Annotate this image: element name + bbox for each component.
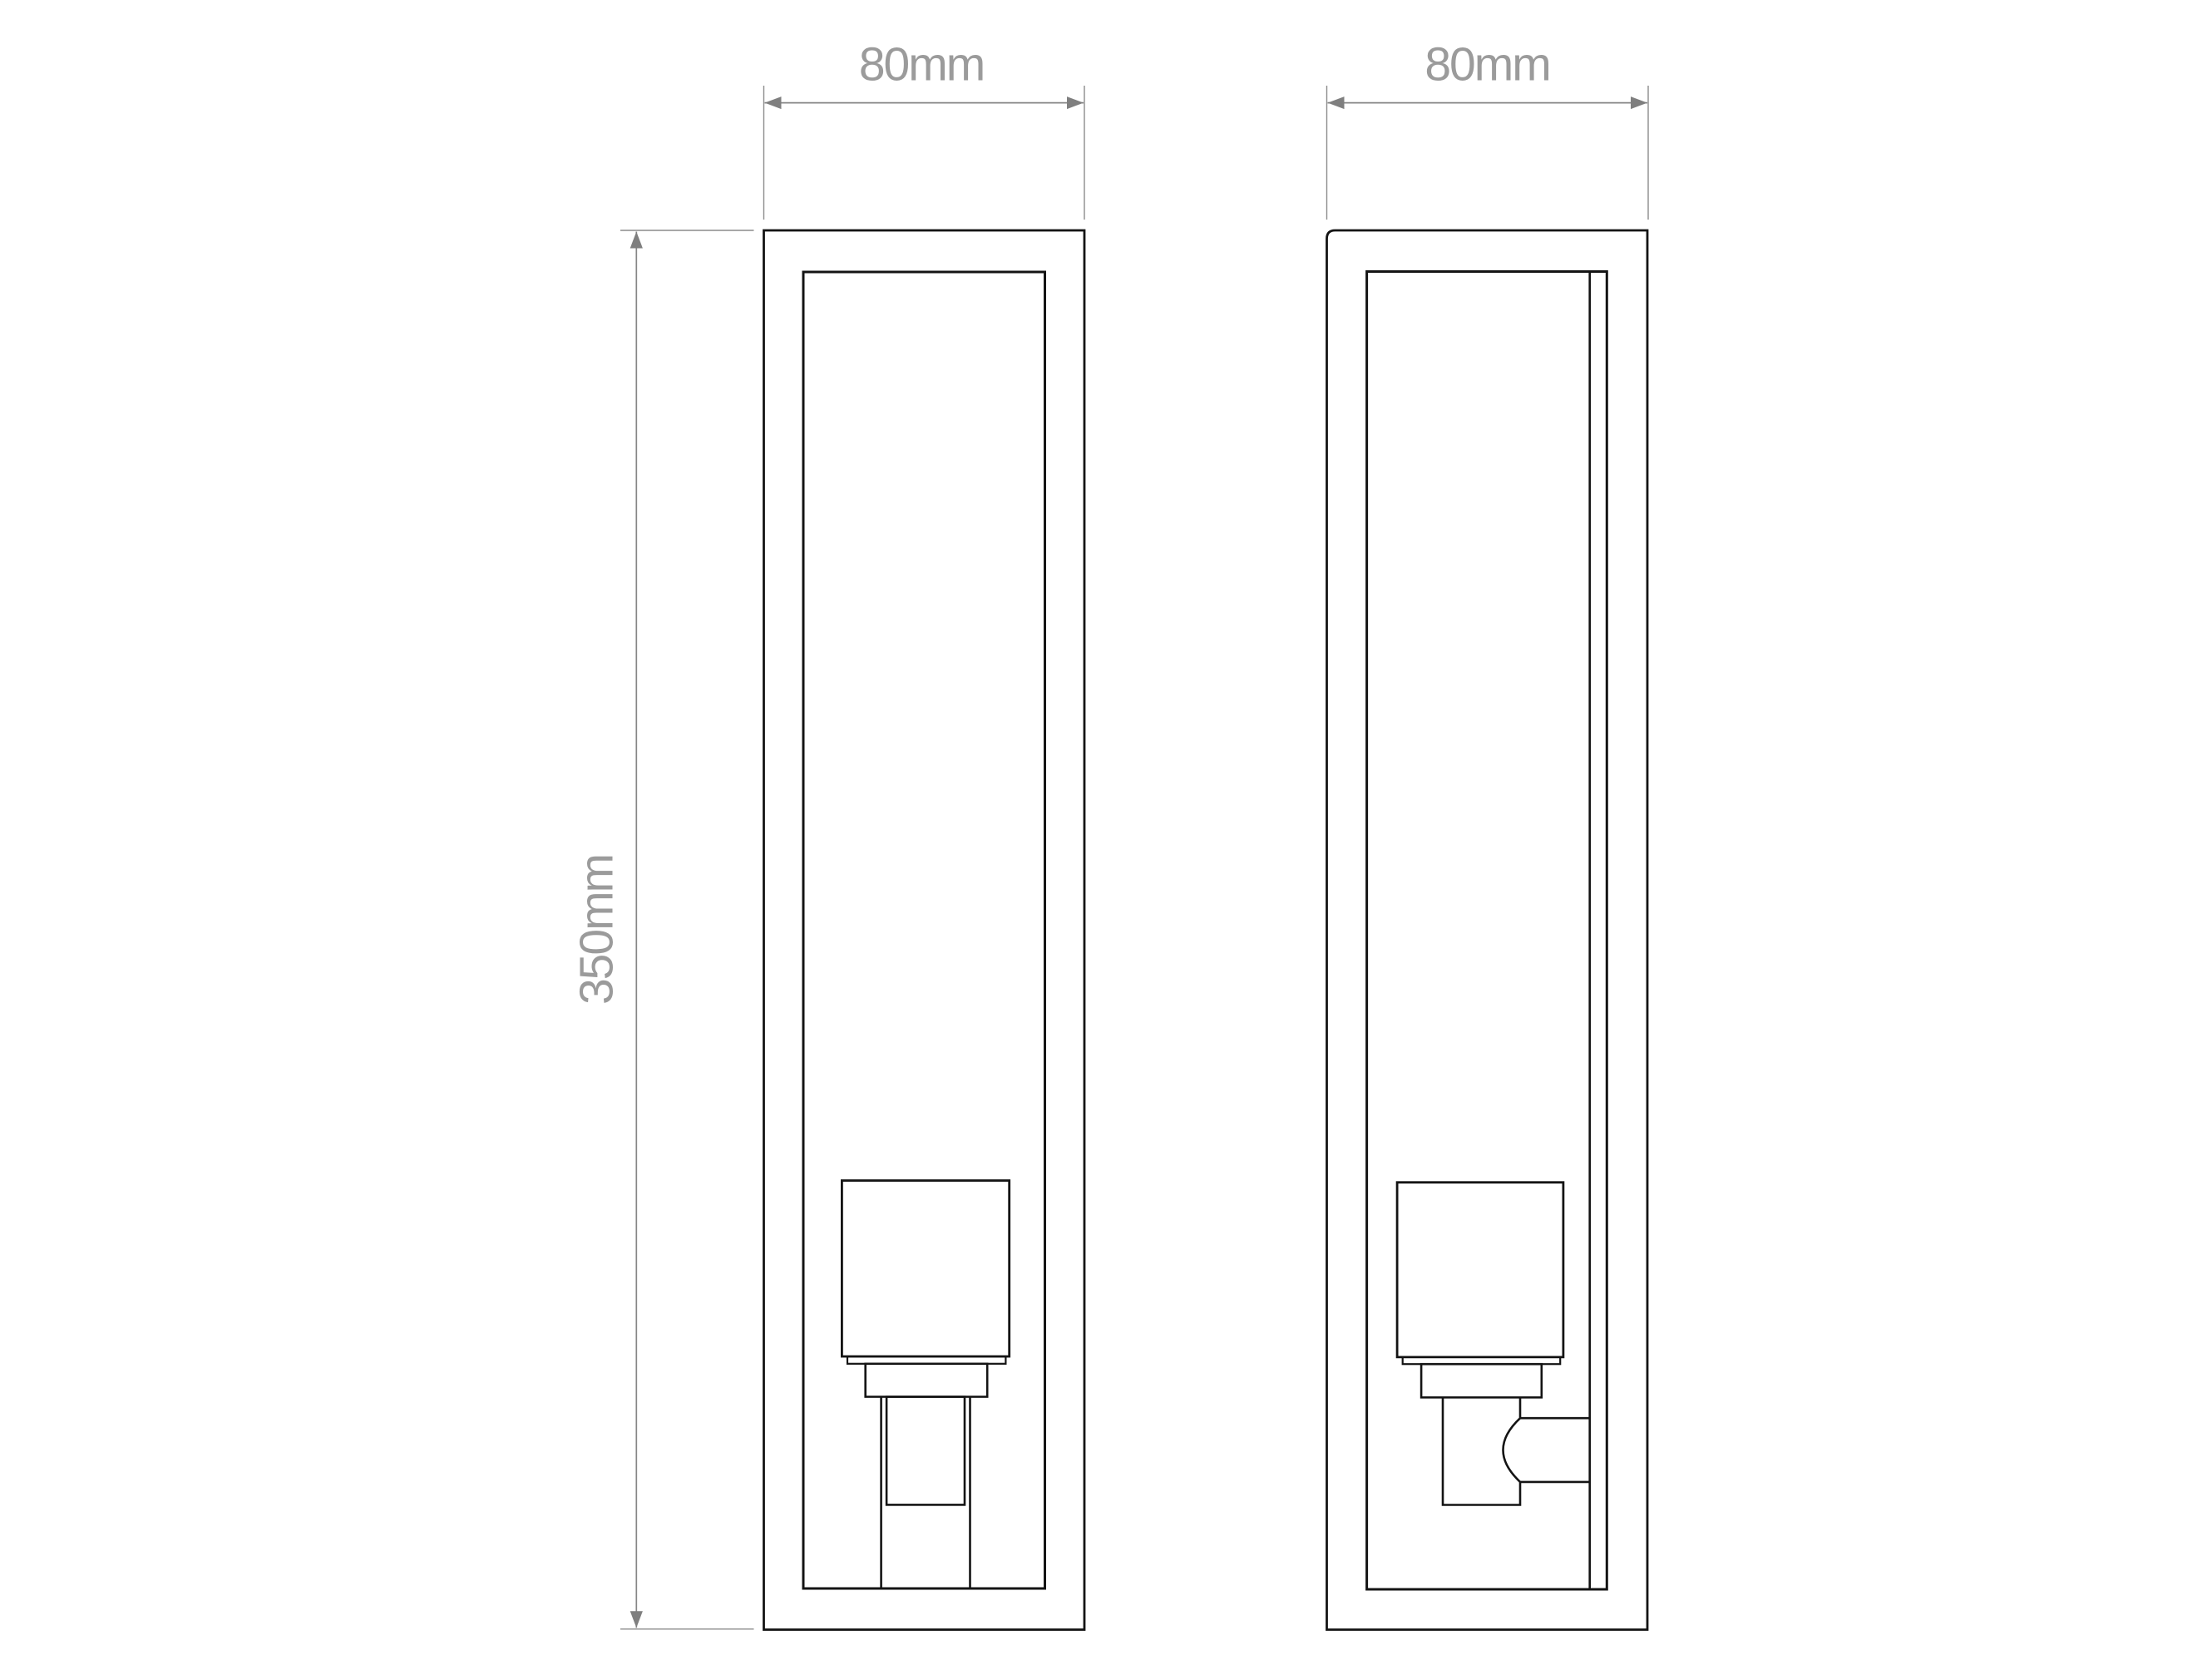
- svg-text:80mm: 80mm: [1424, 38, 1549, 91]
- svg-text:350mm: 350mm: [570, 855, 624, 1005]
- svg-text:80mm: 80mm: [859, 38, 984, 91]
